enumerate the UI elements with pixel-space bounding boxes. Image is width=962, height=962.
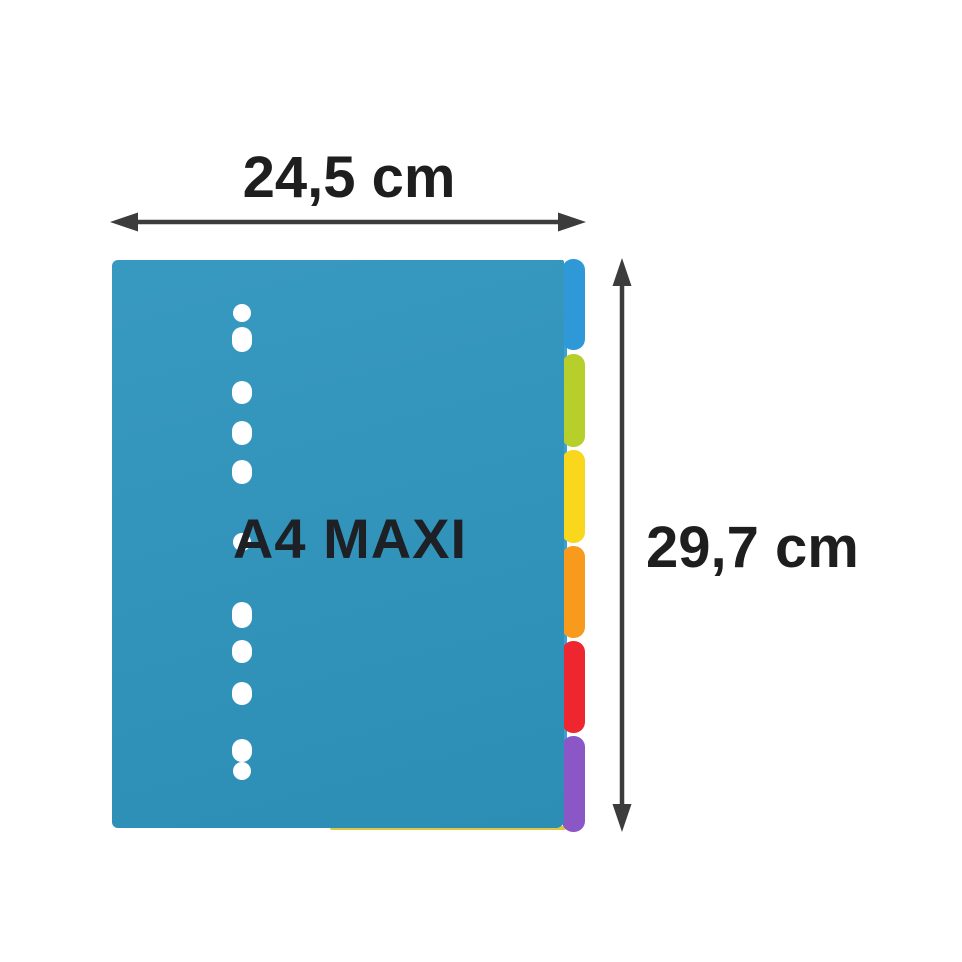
- punch-hole-slot: [232, 327, 252, 352]
- punch-hole-slot: [232, 739, 252, 762]
- tab-yellow: [562, 450, 585, 543]
- tab-purple: [562, 736, 585, 832]
- arrowhead-up-icon: [613, 258, 632, 286]
- divider-sheet: A4 MAXI: [112, 260, 564, 828]
- product-dimension-illustration: 24,5 cm A4 MAXI 29,7 cm: [0, 0, 962, 962]
- punch-hole-slot: [232, 460, 252, 484]
- height-arrow: [606, 252, 638, 838]
- punch-hole-slot: [232, 682, 252, 705]
- punch-hole-slot: [232, 602, 252, 628]
- tab-red: [562, 641, 585, 733]
- punch-hole-round: [233, 762, 251, 780]
- punch-hole-slot: [232, 421, 252, 445]
- height-dimension-label: 29,7 cm: [646, 518, 859, 578]
- tab-orange: [562, 546, 585, 638]
- tab-blue: [562, 259, 585, 350]
- punch-hole-slot: [232, 381, 252, 404]
- arrowhead-down-icon: [613, 804, 632, 832]
- arrowhead-right-icon: [558, 213, 586, 232]
- arrowhead-left-icon: [110, 213, 138, 232]
- width-arrow: [104, 206, 592, 238]
- width-dimension-label: 24,5 cm: [112, 148, 586, 208]
- punch-hole-round: [233, 304, 251, 322]
- tab-green: [562, 354, 585, 447]
- punch-hole-slot: [232, 640, 252, 663]
- product-print-label: A4 MAXI: [112, 510, 564, 568]
